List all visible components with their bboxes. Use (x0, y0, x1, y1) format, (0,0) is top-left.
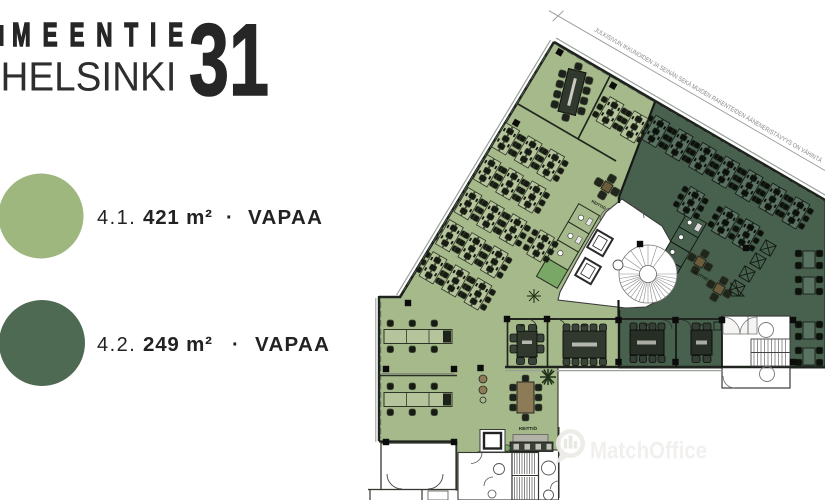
svg-text:KEITTIÖ: KEITTIÖ (519, 425, 538, 431)
svg-text:NH: NH (699, 323, 704, 327)
svg-text:VAPAA: VAPAA (248, 206, 323, 229)
svg-text:4.2.: 4.2. (97, 334, 136, 356)
svg-text:MEENTIE: MEENTIE (12, 16, 195, 53)
svg-text:421 m²: 421 m² (143, 206, 213, 229)
svg-text:VAPAA: VAPAA (255, 333, 330, 356)
svg-text:HELSINKI: HELSINKI (1, 54, 177, 100)
svg-text:4.1.: 4.1. (97, 207, 136, 229)
svg-text:31: 31 (189, 3, 269, 117)
svg-text:NH: NH (645, 323, 650, 327)
svg-text:·: · (226, 207, 233, 229)
svg-text:NH: NH (582, 324, 587, 328)
svg-text:NH: NH (520, 324, 525, 328)
svg-text:249 m²: 249 m² (143, 333, 213, 356)
svg-text:MatchOffice: MatchOffice (590, 438, 707, 465)
svg-text:·: · (232, 334, 239, 356)
